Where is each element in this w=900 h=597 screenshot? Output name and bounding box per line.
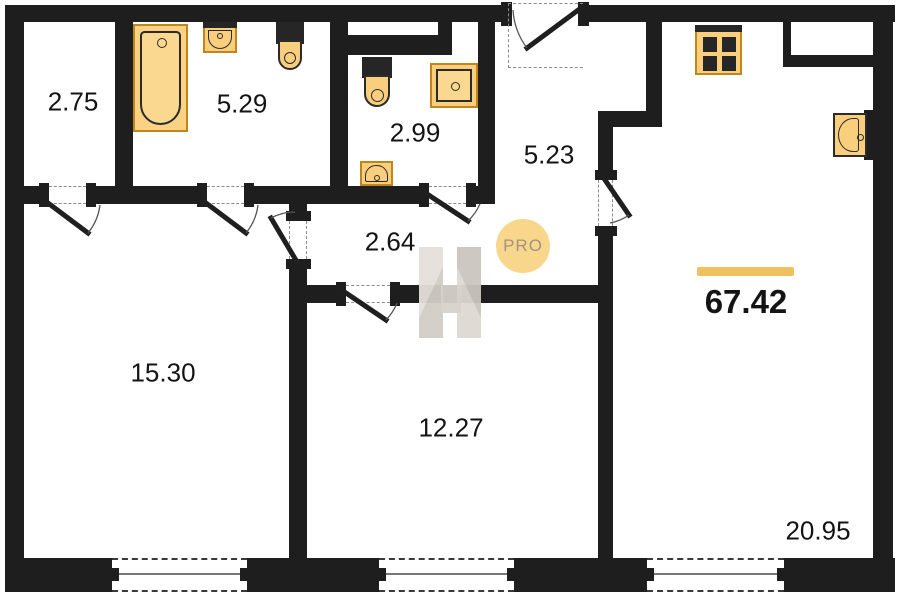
entrance-door-swing-box <box>508 3 583 68</box>
toilet-drain <box>284 52 296 64</box>
stove-icon <box>695 25 742 75</box>
outer-wall-left <box>5 5 24 592</box>
stove-burner <box>703 37 717 52</box>
kitchen-sink-icon <box>833 113 867 157</box>
toilet-drain <box>371 89 384 102</box>
shower-tray-icon <box>430 63 478 108</box>
door-jamb <box>595 226 617 236</box>
door-opening-bathroom <box>207 186 244 204</box>
room-area-label-middle-room: 12.27 <box>418 413 483 444</box>
stove-burner <box>722 37 736 52</box>
door-jamb <box>244 183 254 207</box>
door-opening-bedroom <box>289 221 307 259</box>
door-opening-kitchen <box>598 180 613 226</box>
window-frame-tick <box>240 568 247 581</box>
door-jamb <box>286 211 311 221</box>
door-jamb <box>336 282 346 306</box>
total-area-accent-bar <box>697 267 794 276</box>
door-opening-middle-room <box>346 285 390 303</box>
window-middle-room <box>379 558 514 592</box>
watermark-h-icon <box>441 285 461 313</box>
window-kitchen-living <box>647 558 784 592</box>
door-jamb <box>286 259 311 269</box>
bathtub-drain <box>157 38 167 48</box>
door-jamb <box>39 183 49 207</box>
stove-mount <box>695 25 742 32</box>
window-frame-tick <box>112 568 119 581</box>
door-leaf-storage <box>44 200 88 233</box>
door-swing-arc <box>88 205 100 233</box>
wall-wc-shaft-stub <box>438 22 452 37</box>
floor-plan: PRO 2.75 5.29 2.99 5.23 2.64 15.30 12.27… <box>0 0 900 597</box>
door-leaf-bathroom <box>202 200 246 233</box>
door-opening-wc <box>429 186 466 204</box>
window-bedroom <box>112 558 247 592</box>
door-jamb <box>86 183 96 207</box>
outer-wall-right <box>873 5 893 592</box>
room-area-label-bathroom: 5.29 <box>217 89 268 120</box>
door-jamb <box>466 183 476 207</box>
window-frame-tick <box>647 568 654 581</box>
toilet-icon <box>276 22 304 70</box>
room-area-label-bedroom: 15.30 <box>130 358 195 389</box>
outer-wall-top <box>5 5 895 22</box>
washbasin-icon <box>360 161 393 186</box>
shower-drain <box>451 82 460 91</box>
kitchen-sink-drain <box>857 134 864 141</box>
window-frame-tick <box>777 568 784 581</box>
door-opening-storage <box>49 186 86 204</box>
window-pane <box>112 573 247 575</box>
door-swing-arc <box>246 205 258 233</box>
stove-burner <box>722 56 736 71</box>
washbasin-icon <box>203 22 237 53</box>
door-jamb <box>595 170 617 180</box>
wall-wc-shaft <box>330 35 452 55</box>
room-area-label-wc: 2.99 <box>390 118 441 149</box>
room-area-label-hallway-upper: 5.23 <box>524 140 575 171</box>
window-pane <box>379 573 514 575</box>
window-pane <box>647 573 784 575</box>
wall-storage-bathroom <box>115 22 133 204</box>
bathtub-icon <box>133 24 188 132</box>
total-area-label: 67.42 <box>705 283 788 321</box>
room-area-label-storage: 2.75 <box>48 87 99 118</box>
door-jamb <box>390 282 400 306</box>
door-jamb <box>197 183 207 207</box>
pro-logo-badge: PRO <box>496 219 550 273</box>
toilet-icon <box>362 57 392 107</box>
kitchen-sink-basin <box>838 118 859 152</box>
room-area-label-hallway-lower: 2.64 <box>365 227 416 258</box>
washbasin-drain <box>374 175 380 181</box>
washbasin-drain <box>217 33 223 39</box>
stove-burner <box>703 56 717 71</box>
window-frame-tick <box>379 568 386 581</box>
window-frame-tick <box>507 568 514 581</box>
pro-logo-text: PRO <box>503 236 543 256</box>
watermark-h-icon <box>419 247 443 338</box>
door-jamb <box>419 183 429 207</box>
wall-wc-hallway <box>478 22 495 204</box>
wall-niche-bottom <box>783 55 881 67</box>
room-area-label-kitchen-living: 20.95 <box>785 516 850 547</box>
washbasin-mount <box>203 22 237 28</box>
